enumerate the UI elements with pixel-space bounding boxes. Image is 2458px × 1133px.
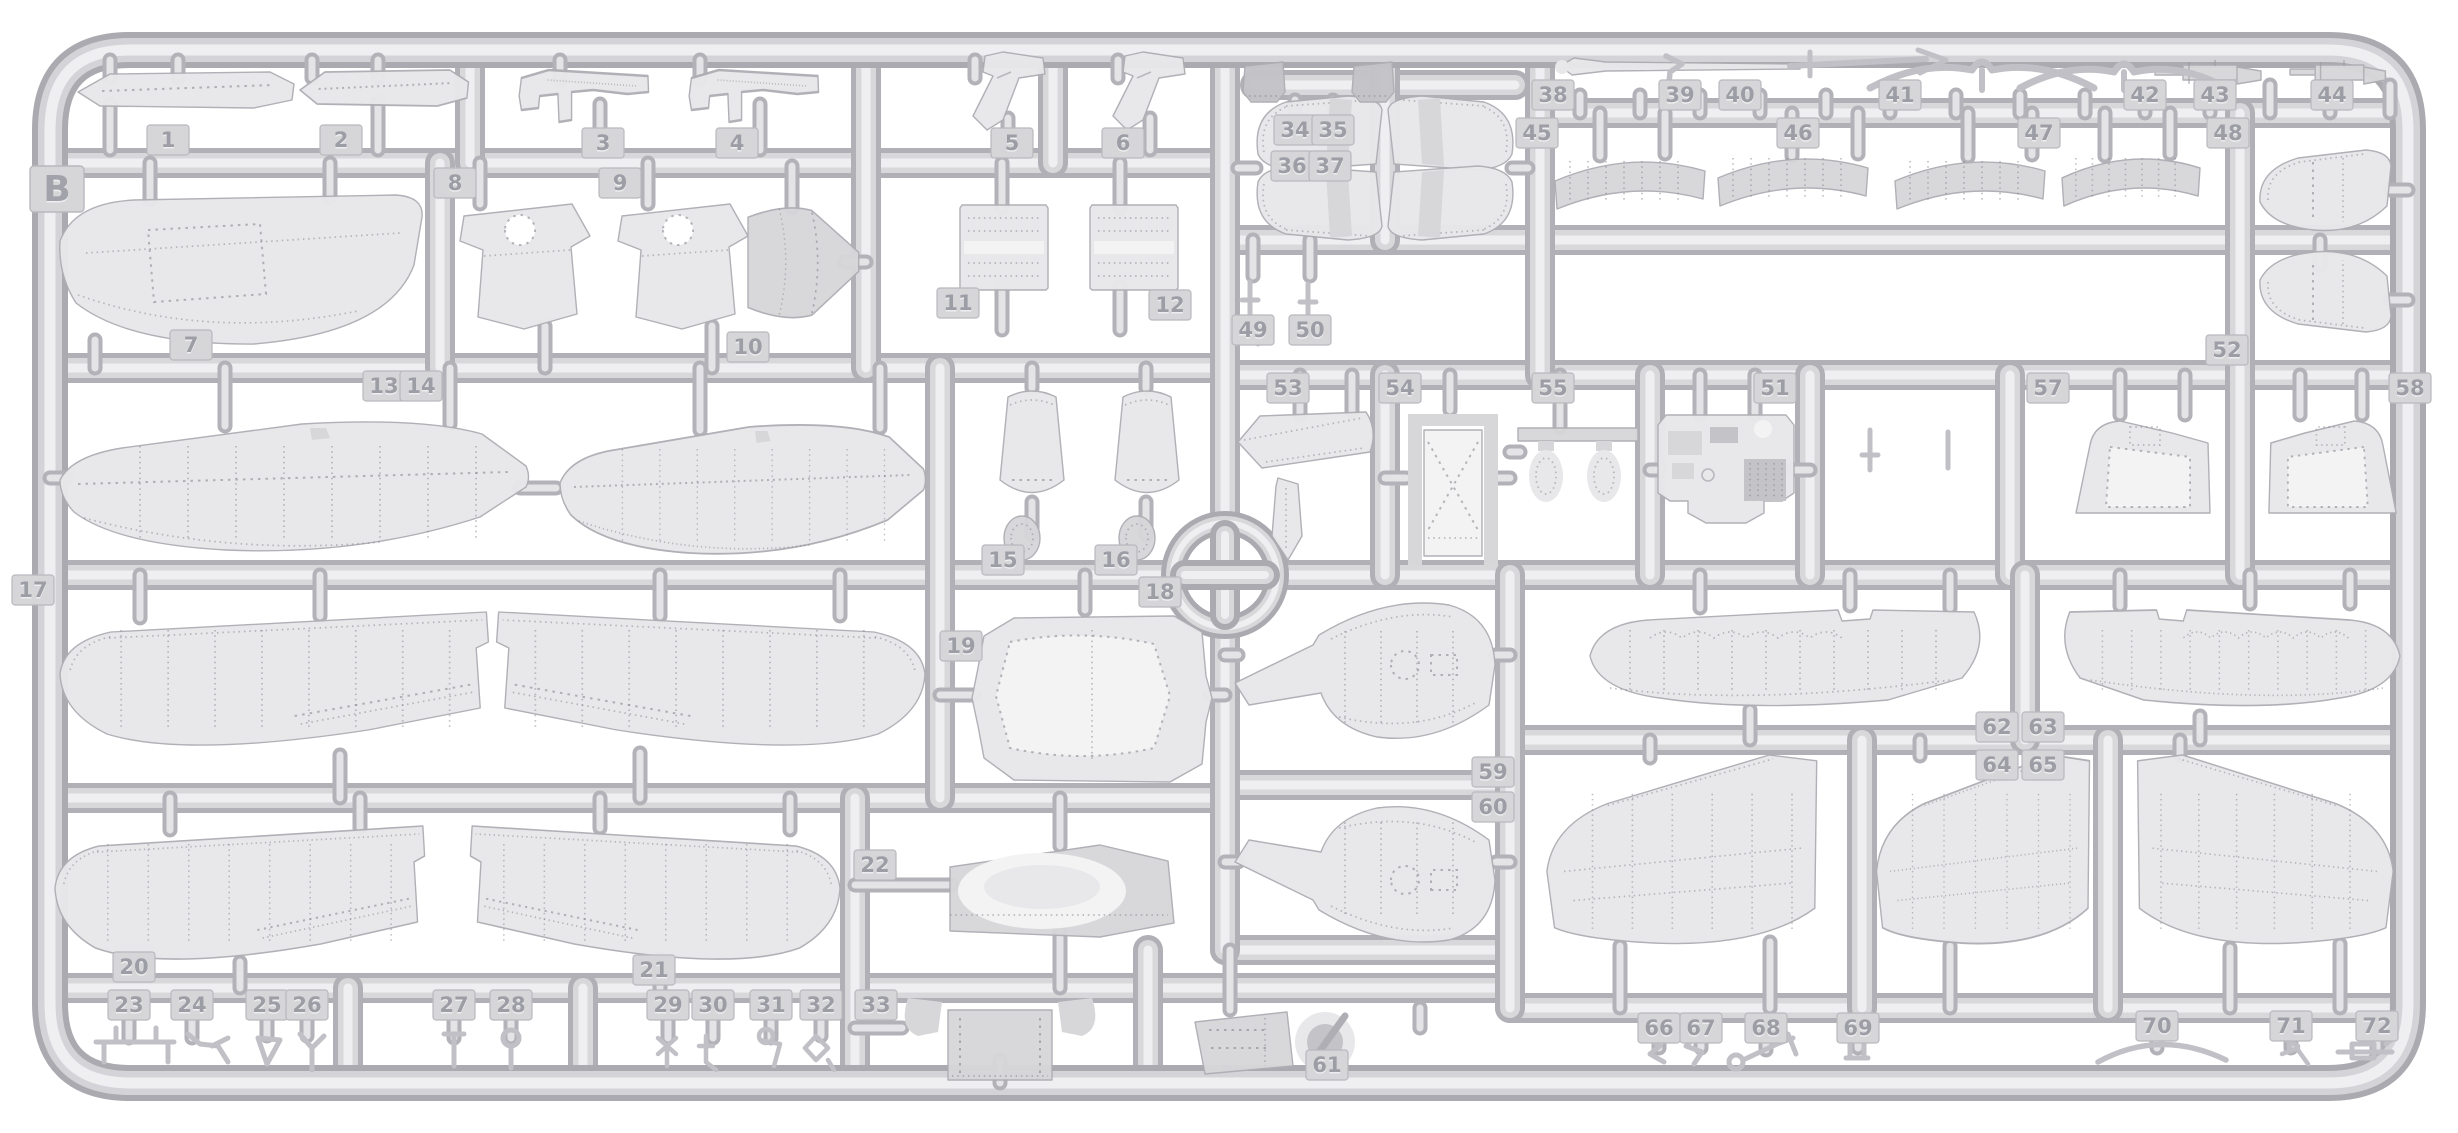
part-number-tag-28: 2828 — [490, 990, 532, 1020]
part-number-tag-47: 4747 — [2018, 118, 2060, 148]
center-ring — [1173, 523, 1277, 627]
part-number-tag-33: 3333 — [855, 990, 897, 1020]
part-number-tag-8: 88 — [434, 168, 476, 198]
svg-text:45: 45 — [1522, 121, 1551, 145]
part-10 — [748, 208, 859, 318]
svg-text:49: 49 — [1238, 318, 1267, 342]
svg-text:42: 42 — [2130, 83, 2159, 107]
part-number-tag-51: 5151 — [1754, 373, 1796, 403]
part-number-tag-55: 5555 — [1532, 373, 1574, 403]
part-46 — [1718, 158, 1868, 206]
part-59 — [1235, 603, 1495, 738]
svg-text:32: 32 — [806, 993, 835, 1017]
part-35b — [1352, 62, 1394, 102]
part-number-tag-65: 6565 — [2022, 750, 2064, 780]
svg-text:40: 40 — [1725, 83, 1754, 107]
svg-text:15: 15 — [988, 548, 1017, 572]
svg-text:39: 39 — [1665, 83, 1694, 107]
part-35 — [1388, 96, 1513, 170]
svg-text:13: 13 — [369, 374, 398, 398]
part-number-tag-29: 2929 — [647, 990, 689, 1020]
svg-text:33: 33 — [861, 993, 890, 1017]
part-number-tag-22: 2222 — [854, 850, 896, 880]
part-37 — [1388, 166, 1513, 240]
part-number-tag-45: 4545 — [1516, 118, 1558, 148]
part-52 — [2260, 252, 2391, 333]
part-65b — [2138, 755, 2394, 944]
part-12 — [1090, 205, 1178, 290]
svg-text:B: B — [43, 169, 70, 210]
svg-text:54: 54 — [1385, 376, 1414, 400]
svg-text:70: 70 — [2142, 1014, 2171, 1038]
svg-text:19: 19 — [946, 634, 975, 658]
part-number-tag-14: 1414 — [400, 371, 442, 401]
svg-text:36: 36 — [1277, 154, 1306, 178]
svg-text:47: 47 — [2024, 121, 2053, 145]
part-3 — [519, 70, 648, 122]
part-number-tag-46: 4646 — [1777, 118, 1819, 148]
part-number-tag-64: 6464 — [1976, 750, 2018, 780]
part-62 — [1590, 610, 1980, 706]
svg-text:3: 3 — [596, 131, 611, 155]
part-8 — [460, 204, 590, 329]
part-number-tag-20: 2020 — [113, 952, 155, 982]
part-20 — [55, 826, 425, 959]
part-number-tag-23: 2323 — [108, 990, 150, 1020]
part-number-tag-37: 3737 — [1309, 151, 1351, 181]
svg-text:72: 72 — [2362, 1014, 2391, 1038]
part-14 — [560, 425, 925, 554]
svg-text:26: 26 — [292, 993, 321, 1017]
part-number-tag-3: 33 — [582, 128, 624, 158]
part-number-tag-54: 5454 — [1379, 373, 1421, 403]
svg-text:17: 17 — [18, 578, 47, 602]
part-number-tag-58: 5858 — [2389, 373, 2431, 403]
part-number-tag-26: 2626 — [286, 990, 328, 1020]
part-number-tag-17: 1717 — [12, 575, 54, 605]
svg-text:59: 59 — [1478, 760, 1507, 784]
svg-text:65: 65 — [2028, 753, 2057, 777]
part-number-tag-13: 1313 — [363, 371, 405, 401]
part-number-tag-2: 22 — [320, 125, 362, 155]
part-number-tag-6: 66 — [1102, 128, 1144, 158]
part-number-tag-38: 3838 — [1532, 80, 1574, 110]
part-7 — [60, 195, 422, 344]
part-number-tag-24: 2424 — [171, 990, 213, 1020]
svg-text:37: 37 — [1315, 154, 1344, 178]
part-number-tag-5: 55 — [991, 128, 1033, 158]
part-number-tag-57: 5757 — [2027, 373, 2069, 403]
svg-text:62: 62 — [1982, 715, 2011, 739]
svg-text:64: 64 — [1982, 753, 2011, 777]
svg-text:30: 30 — [698, 993, 727, 1017]
svg-text:23: 23 — [114, 993, 143, 1017]
part-number-tag-66: 6666 — [1638, 1013, 1680, 1043]
part-number-tag-12: 1212 — [1149, 290, 1191, 320]
svg-text:29: 29 — [653, 993, 682, 1017]
part-60 — [1235, 807, 1495, 942]
part-65 — [1877, 755, 2090, 944]
part-number-tag-50: 5050 — [1289, 315, 1331, 345]
part-number-tag-70: 7070 — [2136, 1011, 2178, 1041]
part-number-tag-49: 4949 — [1232, 315, 1274, 345]
svg-text:67: 67 — [1686, 1016, 1715, 1040]
part-number-tag-30: 3030 — [692, 990, 734, 1020]
svg-text:48: 48 — [2213, 121, 2242, 145]
svg-text:14: 14 — [406, 374, 435, 398]
part-number-tag-25: 2525 — [246, 990, 288, 1020]
svg-text:7: 7 — [184, 333, 199, 357]
svg-text:16: 16 — [1101, 548, 1130, 572]
svg-text:25: 25 — [252, 993, 281, 1017]
part-63 — [2065, 610, 2400, 706]
svg-text:21: 21 — [639, 958, 668, 982]
part-16 — [1115, 391, 1179, 493]
part-45 — [1555, 161, 1705, 209]
part-54 — [1408, 414, 1498, 566]
svg-text:38: 38 — [1538, 83, 1567, 107]
svg-text:43: 43 — [2200, 83, 2229, 107]
part-number-tag-35: 3535 — [1312, 115, 1354, 145]
part-number-tag-19: 1919 — [940, 631, 982, 661]
part-19 — [972, 616, 1212, 782]
part-number-tag-72: 7272 — [2356, 1011, 2398, 1041]
part-1 — [78, 72, 294, 108]
svg-text:61: 61 — [1312, 1053, 1341, 1077]
part-57 — [2076, 421, 2210, 513]
part-15 — [1000, 391, 1064, 493]
part-number-tag-71: 7171 — [2270, 1011, 2312, 1041]
svg-text:55: 55 — [1538, 376, 1567, 400]
svg-text:5: 5 — [1005, 131, 1020, 155]
part-number-tag-34: 3434 — [1274, 115, 1316, 145]
svg-text:69: 69 — [1843, 1016, 1872, 1040]
part-51 — [1658, 415, 1794, 523]
part-17 — [60, 612, 488, 745]
svg-text:51: 51 — [1760, 376, 1789, 400]
part-34b — [1243, 62, 1285, 102]
part-number-tag-27: 2727 — [433, 990, 475, 1020]
part-number-tag-53: 5353 — [1267, 373, 1309, 403]
part-number-tag-40: 4040 — [1719, 80, 1761, 110]
sprue-b-render: 1122334455667788991010111112121313141415… — [0, 0, 2458, 1133]
svg-text:31: 31 — [756, 993, 785, 1017]
svg-text:18: 18 — [1145, 580, 1174, 604]
part-number-tag-41: 4141 — [1879, 80, 1921, 110]
svg-text:66: 66 — [1644, 1016, 1673, 1040]
part-number-tag-32: 3232 — [800, 990, 842, 1020]
part-number-tag-31: 3131 — [750, 990, 792, 1020]
svg-text:22: 22 — [860, 853, 889, 877]
part-48b — [2260, 150, 2391, 231]
svg-text:44: 44 — [2317, 83, 2346, 107]
part-64 — [1547, 755, 1817, 944]
part-number-tag-7: 77 — [170, 330, 212, 360]
part-number-tag-42: 4242 — [2124, 80, 2166, 110]
part-21 — [470, 826, 840, 959]
svg-text:9: 9 — [613, 171, 628, 195]
photo-canvas: 1122334455667788991010111112121313141415… — [0, 0, 2458, 1133]
part-number-tag-59: 5959 — [1472, 757, 1514, 787]
svg-text:46: 46 — [1783, 121, 1812, 145]
part-number-tag-63: 6363 — [2022, 712, 2064, 742]
part-22 — [950, 845, 1174, 937]
part-number-tag-44: 4444 — [2311, 80, 2353, 110]
part-58 — [2269, 421, 2396, 513]
part-number-tag-61: 6161 — [1306, 1050, 1348, 1080]
svg-text:53: 53 — [1273, 376, 1302, 400]
part-48 — [2062, 158, 2200, 206]
svg-text:35: 35 — [1318, 118, 1347, 142]
part-number-tag-48: 4848 — [2207, 118, 2249, 148]
part-number-tag-11: 1111 — [937, 288, 979, 318]
svg-text:34: 34 — [1280, 118, 1309, 142]
svg-text:20: 20 — [119, 955, 148, 979]
part-2 — [300, 70, 468, 106]
part-number-tag-67: 6767 — [1680, 1013, 1722, 1043]
svg-text:50: 50 — [1295, 318, 1324, 342]
part-number-tag-36: 3636 — [1271, 151, 1313, 181]
svg-text:63: 63 — [2028, 715, 2057, 739]
part-55 — [1518, 428, 1638, 502]
sprue-letter-tag: BB — [30, 166, 84, 212]
svg-text:1: 1 — [161, 128, 176, 152]
svg-text:41: 41 — [1885, 83, 1914, 107]
part-number-tag-4: 44 — [716, 128, 758, 158]
svg-text:52: 52 — [2212, 338, 2241, 362]
part-number-tag-62: 6262 — [1976, 712, 2018, 742]
part-number-tag-9: 99 — [599, 168, 641, 198]
svg-text:60: 60 — [1478, 795, 1507, 819]
svg-text:12: 12 — [1155, 293, 1184, 317]
part-number-tag-60: 6060 — [1472, 792, 1514, 822]
part-number-tag-39: 3939 — [1659, 80, 1701, 110]
svg-text:4: 4 — [730, 131, 745, 155]
svg-text:71: 71 — [2276, 1014, 2305, 1038]
svg-text:10: 10 — [733, 335, 762, 359]
part-number-tag-16: 1616 — [1095, 545, 1137, 575]
part-number-tag-69: 6969 — [1837, 1013, 1879, 1043]
part-number-tag-52: 5252 — [2206, 335, 2248, 365]
part-number-tag-43: 4343 — [2194, 80, 2236, 110]
svg-text:58: 58 — [2395, 376, 2424, 400]
svg-text:27: 27 — [439, 993, 468, 1017]
svg-text:57: 57 — [2033, 376, 2062, 400]
part-number-tag-18: 1818 — [1139, 577, 1181, 607]
part-number-tag-10: 1010 — [727, 332, 769, 362]
part-13 — [60, 422, 529, 551]
part-number-tag-68: 6868 — [1745, 1013, 1787, 1043]
svg-text:68: 68 — [1751, 1016, 1780, 1040]
svg-text:8: 8 — [448, 171, 463, 195]
svg-text:6: 6 — [1116, 131, 1131, 155]
part-number-tag-21: 2121 — [633, 955, 675, 985]
part-9 — [618, 204, 748, 329]
svg-text:28: 28 — [496, 993, 525, 1017]
part-11 — [960, 205, 1048, 290]
svg-text:24: 24 — [177, 993, 206, 1017]
part-number-tag-15: 1515 — [982, 545, 1024, 575]
part-number-tag-1: 11 — [147, 125, 189, 155]
part-47 — [1895, 161, 2045, 209]
svg-text:2: 2 — [334, 128, 349, 152]
part-18 — [497, 612, 925, 745]
svg-text:11: 11 — [943, 291, 972, 315]
part-53 — [1238, 412, 1373, 468]
